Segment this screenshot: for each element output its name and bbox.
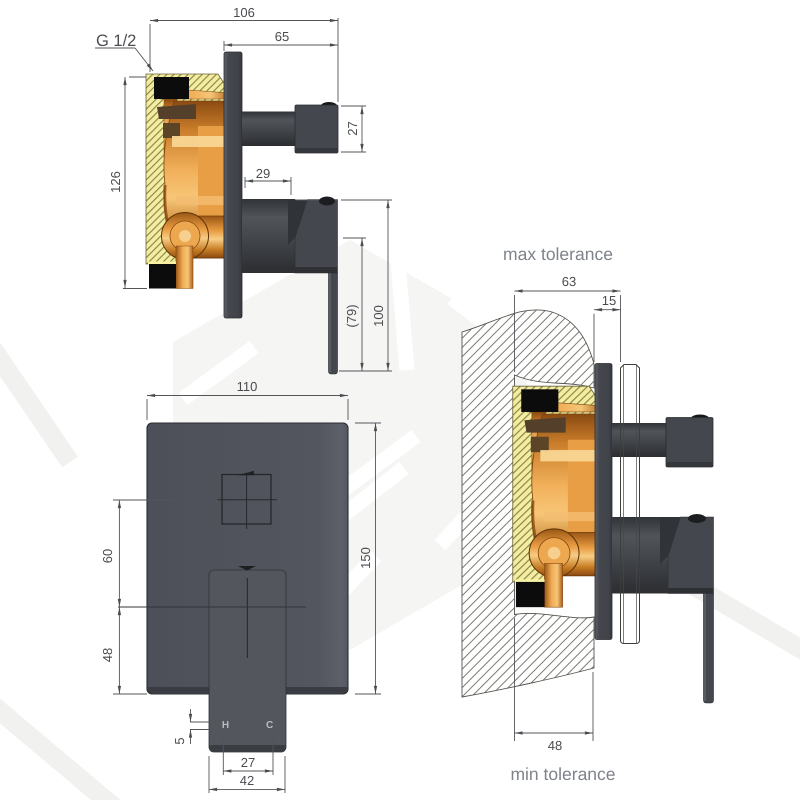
svg-text:27: 27	[345, 121, 360, 135]
svg-text:min tolerance: min tolerance	[510, 764, 615, 784]
svg-text:15: 15	[602, 293, 616, 308]
svg-text:106: 106	[233, 5, 255, 20]
svg-text:G 1/2: G 1/2	[96, 32, 136, 50]
svg-text:60: 60	[100, 549, 115, 563]
svg-text:(79): (79)	[344, 304, 359, 327]
svg-text:H: H	[222, 720, 229, 731]
svg-text:48: 48	[548, 738, 562, 753]
svg-text:48: 48	[100, 648, 115, 662]
svg-text:65: 65	[275, 29, 289, 44]
svg-text:5: 5	[172, 737, 187, 744]
svg-text:42: 42	[240, 773, 254, 788]
svg-text:126: 126	[108, 171, 123, 193]
svg-text:110: 110	[237, 379, 258, 394]
svg-text:max tolerance: max tolerance	[503, 244, 613, 264]
svg-text:63: 63	[562, 274, 576, 289]
svg-text:C: C	[266, 720, 273, 731]
svg-text:150: 150	[358, 547, 373, 569]
svg-text:27: 27	[241, 755, 255, 770]
svg-text:100: 100	[371, 305, 386, 327]
svg-text:29: 29	[256, 166, 270, 181]
